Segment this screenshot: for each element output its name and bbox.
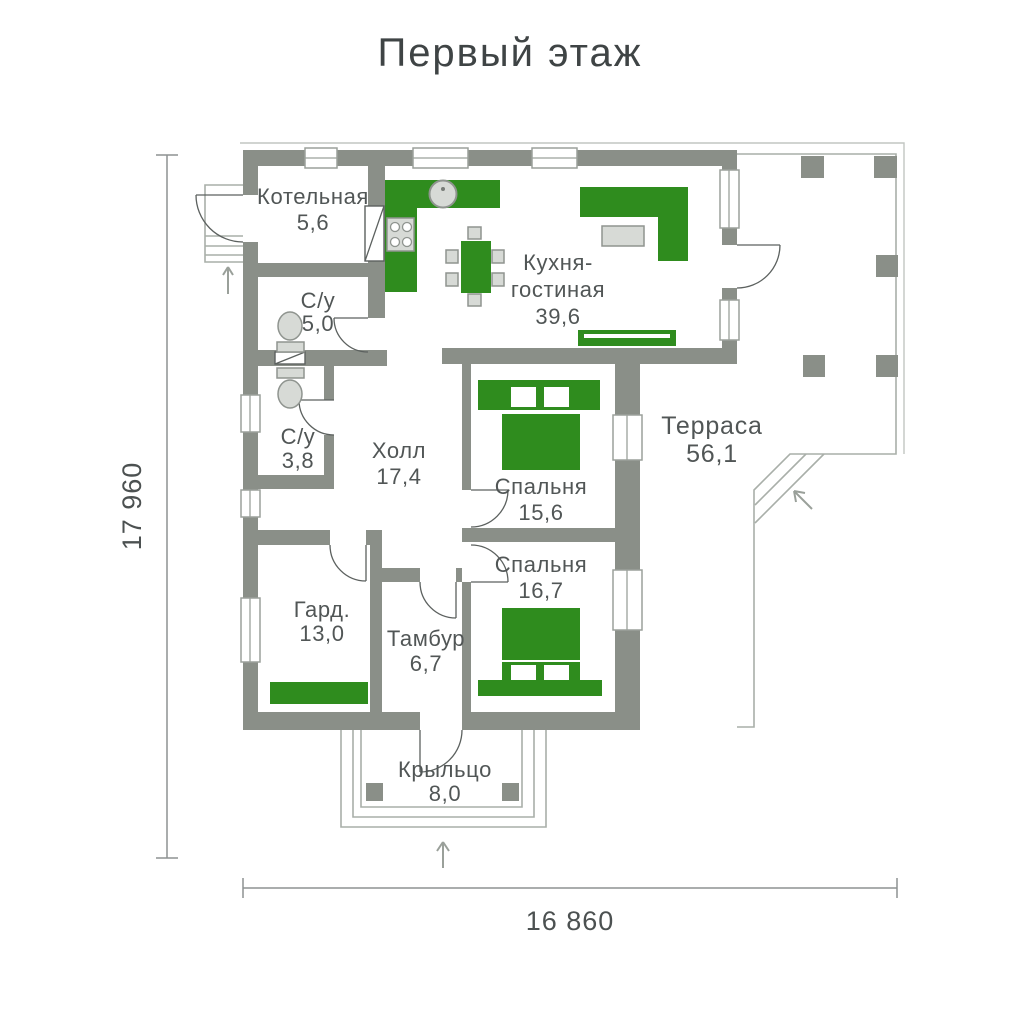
toilet-icon-bath1 xyxy=(277,312,304,352)
room-label-wardrobe: Гард. xyxy=(294,597,351,622)
room-label-porch: Крыльцо xyxy=(398,757,492,782)
room-area-boiler: 5,6 xyxy=(297,210,329,235)
room-area-hall: 17,4 xyxy=(376,464,421,489)
toilet-icon-bath2 xyxy=(277,368,304,408)
room-label-terrace: Терраса xyxy=(661,412,763,440)
room-label-kitchen-line1: Кухня- xyxy=(523,250,593,275)
room-label-hall: Холл xyxy=(372,438,426,463)
room-label-bedroom1: Спальня xyxy=(495,474,588,499)
vertical-dimension-line xyxy=(156,155,178,858)
floor-plan-page: Первый этаж Котельная 5,6 С/у 5,0 Кухня-… xyxy=(0,0,1022,1024)
horizontal-dimension-value: 16 860 xyxy=(526,906,615,936)
page-title: Первый этаж xyxy=(377,31,642,75)
terrace-pillars xyxy=(801,156,898,377)
porch-pillar-left xyxy=(366,783,383,801)
room-label-bath1: С/у xyxy=(301,288,336,313)
sink-icon xyxy=(430,181,457,208)
vertical-dimension-value: 17 960 xyxy=(117,462,147,551)
room-label-bedroom2: Спальня xyxy=(495,552,588,577)
tv-stand-icon xyxy=(578,330,676,346)
terrace-door xyxy=(737,245,780,288)
boiler-icon xyxy=(365,206,384,261)
coffee-table-icon xyxy=(602,226,644,246)
side-steps xyxy=(205,185,247,262)
horizontal-dimension-line xyxy=(243,878,897,898)
vent-shaft-icon xyxy=(275,352,305,364)
room-area-bath2: 3,8 xyxy=(282,448,314,473)
porch-entry-arrow-icon xyxy=(437,842,449,868)
room-label-bath2: С/у xyxy=(281,424,316,449)
room-label-boiler: Котельная xyxy=(257,184,369,209)
terrace-steps xyxy=(755,454,824,523)
side-entry-arrow-icon xyxy=(223,267,233,294)
terrace-entry-arrow-icon xyxy=(794,491,812,509)
porch-pillar-right xyxy=(502,783,519,801)
floor-plan-drawing: Первый этаж Котельная 5,6 С/у 5,0 Кухня-… xyxy=(0,0,1022,1024)
room-label-vestibule: Тамбур xyxy=(387,626,465,651)
room-area-kitchen: 39,6 xyxy=(535,304,580,329)
room-area-bedroom2: 16,7 xyxy=(518,578,563,603)
stove-icon xyxy=(387,218,414,251)
room-area-bath1: 5,0 xyxy=(302,311,334,336)
room-area-bedroom1: 15,6 xyxy=(518,500,563,525)
room-label-kitchen-line2: гостиная xyxy=(511,277,605,302)
room-area-wardrobe: 13,0 xyxy=(299,621,344,646)
room-area-porch: 8,0 xyxy=(429,781,461,806)
room-area-vestibule: 6,7 xyxy=(410,651,442,676)
wardrobe-icon xyxy=(270,682,368,704)
room-area-terrace: 56,1 xyxy=(686,440,738,468)
side-door xyxy=(196,195,243,242)
